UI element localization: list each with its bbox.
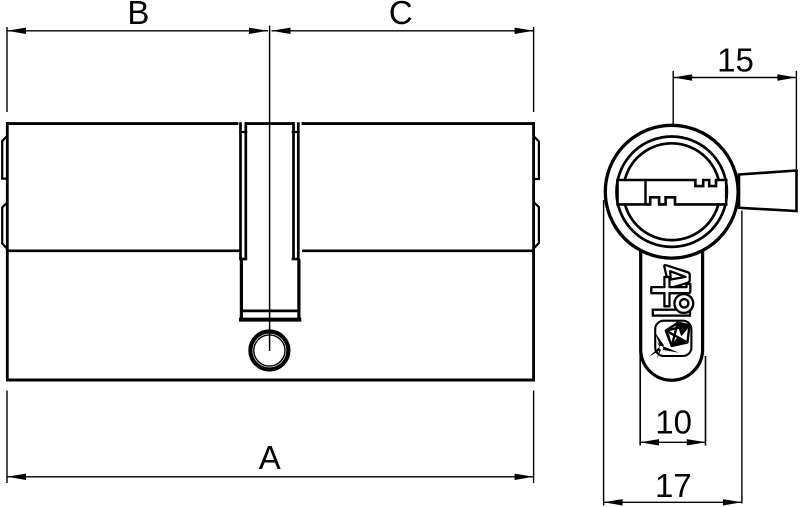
- svg-text:15: 15: [717, 42, 754, 79]
- svg-text:B: B: [127, 0, 149, 31]
- svg-text:10: 10: [655, 404, 692, 441]
- svg-text:17: 17: [655, 467, 692, 504]
- svg-text:C: C: [389, 0, 413, 31]
- svg-text:A: A: [259, 439, 281, 476]
